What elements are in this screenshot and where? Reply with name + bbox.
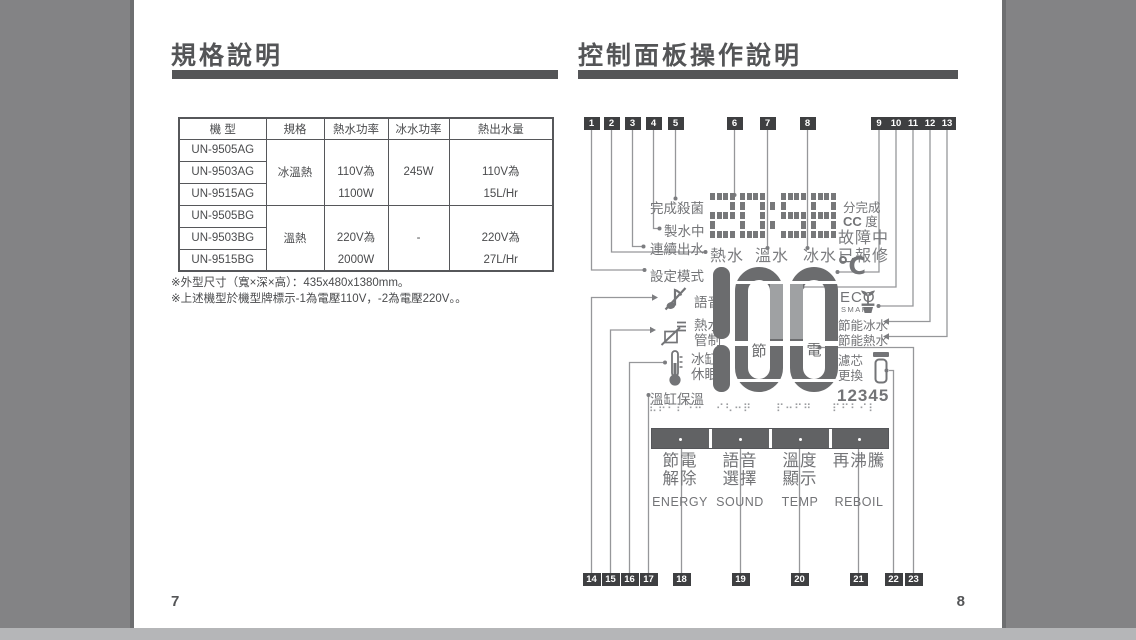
lcd-dot <box>781 193 786 200</box>
callout-20: 20 <box>791 573 809 586</box>
header-hot-power: 熱水功率 <box>324 118 388 139</box>
lcd-dot <box>811 212 816 219</box>
button-label-line1: 溫度 <box>770 452 830 470</box>
page-number-left: 7 <box>171 593 179 610</box>
segment-gap <box>790 379 838 382</box>
lcd-dot <box>794 193 799 200</box>
lcd-dot <box>747 193 752 200</box>
spec-section-title: 規格說明 <box>171 36 283 72</box>
lcd-dot <box>717 231 722 238</box>
lcd-dot <box>740 193 745 200</box>
lcd-dot <box>781 212 786 219</box>
cold-power-cell: 245W <box>388 139 449 205</box>
panel-title-bar <box>578 70 958 79</box>
table-header-row: 機 型 規格 熱水功率 冰水功率 熱出水量 <box>179 118 553 139</box>
lcd-dot <box>831 231 836 238</box>
lcd-dot <box>824 231 829 238</box>
lcd-dot <box>740 202 745 209</box>
viewer-bottom-strip <box>0 628 1136 640</box>
lcd-dot <box>723 231 728 238</box>
segment-gap <box>735 379 783 382</box>
label-making-water: 製水中 <box>664 220 705 240</box>
lcd-dot <box>811 202 816 209</box>
output-line1: 110V為 <box>452 161 551 183</box>
button-label-line2: 顯示 <box>770 470 830 488</box>
sprout-icon <box>858 288 878 314</box>
lcd-dot <box>831 193 836 200</box>
lcd-dot <box>818 231 823 238</box>
model-cell: UN-9503BG <box>179 227 266 249</box>
segment-gap <box>790 281 838 284</box>
button-divider <box>769 429 772 448</box>
hot-power-line1: 110V為 <box>327 161 386 183</box>
spec-cell: 溫熱 <box>266 205 324 271</box>
label-filter-line2: 更換 <box>838 369 863 384</box>
braille-energy: ⠧⠗⠃⠏⠙⠛ <box>645 402 707 415</box>
button-dot-energy <box>679 438 682 441</box>
lcd-dot <box>740 221 745 228</box>
lcd-dot <box>801 221 806 228</box>
lcd-dot <box>753 231 758 238</box>
button-dot-reboil <box>858 438 861 441</box>
lcd-dot <box>753 193 758 200</box>
hot-power-cell: 110V為 1100W <box>324 139 388 205</box>
label-set-mode: 設定模式 <box>650 265 704 285</box>
callout-19: 19 <box>732 573 750 586</box>
button-divider <box>709 429 712 448</box>
callout-12: 12 <box>921 117 939 130</box>
header-cold-power: 冰水功率 <box>388 118 449 139</box>
callout-14: 14 <box>583 573 601 586</box>
panel-section-title: 控制面板操作說明 <box>578 36 802 72</box>
button-label-reboil: 再沸騰 <box>829 452 889 470</box>
callout-22: 22 <box>885 573 903 586</box>
viewer-background: 規格說明 機 型 規格 熱水功率 冰水功率 熱出水量 UN-9505AG 冰溫熱… <box>0 0 1136 640</box>
lcd-dot <box>781 231 786 238</box>
table-row: UN-9505AG 冰溫熱 110V為 1100W 245W 110V為 15L… <box>179 139 553 161</box>
lcd-dot <box>710 221 715 228</box>
label-sterilize-done: 完成殺菌 <box>650 197 704 217</box>
digit-zero-2-light-segment <box>790 284 803 339</box>
lcd-dot <box>730 212 735 219</box>
lcd-dot <box>801 231 806 238</box>
model-cell: UN-9515AG <box>179 183 266 205</box>
spec-title-bar <box>172 70 558 79</box>
button-label-temp: 溫度 顯示 <box>770 452 830 488</box>
label-power-char: 電 <box>790 339 838 360</box>
model-cell: UN-9505BG <box>179 205 266 227</box>
digit-zero-1-light-segment <box>770 284 783 339</box>
segment-gap <box>735 281 783 284</box>
lcd-dot <box>831 212 836 219</box>
output-cell: 220V為 27L/Hr <box>449 205 553 271</box>
lcd-dot <box>801 212 806 219</box>
lcd-time-display <box>710 193 838 240</box>
celsius-symbol: ℃ <box>837 252 866 281</box>
callout-21: 21 <box>850 573 868 586</box>
lcd-dot <box>831 202 836 209</box>
label-save-char: 節 <box>735 340 783 361</box>
header-model: 機 型 <box>179 118 266 139</box>
lcd-dot <box>717 212 722 219</box>
callout-11: 11 <box>904 117 922 130</box>
lcd-dot <box>811 193 816 200</box>
lcd-dot <box>723 193 728 200</box>
callout-6: 6 <box>727 117 743 130</box>
button-label-line1: 節電 <box>650 452 710 470</box>
label-fault: 故障中 <box>838 224 889 248</box>
lcd-dot <box>710 212 715 219</box>
braille-reboil: ⠏⠋⠃⠊⠇ <box>832 402 876 415</box>
button-label-sound: 語音 選擇 <box>710 452 770 488</box>
digit-one-upper-segment <box>713 267 730 339</box>
callout-2: 2 <box>604 117 620 130</box>
lcd-dot <box>730 202 735 209</box>
lcd-dot <box>788 212 793 219</box>
lcd-dot <box>730 193 735 200</box>
model-cell: UN-9503AG <box>179 161 266 183</box>
lcd-dot <box>717 193 722 200</box>
cold-power-cell: - <box>388 205 449 271</box>
output-line1: 220V為 <box>452 227 551 249</box>
lcd-dot <box>760 202 765 209</box>
callout-17: 17 <box>640 573 658 586</box>
label-continuous-out: 連續出水 <box>650 238 704 258</box>
lcd-dot <box>723 212 728 219</box>
callout-18: 18 <box>673 573 691 586</box>
lcd-dot <box>710 231 715 238</box>
lcd-dot <box>770 202 775 209</box>
label-filter-replace: 濾芯 更換 <box>838 354 863 384</box>
callout-8: 8 <box>800 117 816 130</box>
voice-mute-icon <box>662 284 690 312</box>
button-divider <box>829 429 832 448</box>
lcd-dot <box>794 212 799 219</box>
hot-power-line2: 1100W <box>327 183 386 205</box>
lcd-dot <box>740 212 745 219</box>
button-strip <box>651 428 889 449</box>
callout-3: 3 <box>625 117 641 130</box>
lcd-dot <box>811 231 816 238</box>
lcd-dot <box>760 193 765 200</box>
callout-15: 15 <box>602 573 620 586</box>
lcd-dot <box>740 231 745 238</box>
callout-7: 7 <box>760 117 776 130</box>
button-label-line1: 語音 <box>710 452 770 470</box>
spec-cell: 冰溫熱 <box>266 139 324 205</box>
lcd-dot <box>760 231 765 238</box>
braille-sound: ⠊⠣⠒⠟ <box>712 402 756 415</box>
hot-power-line2: 2000W <box>327 249 386 271</box>
label-eco-hot: 節能熱水 <box>838 330 888 349</box>
button-label-line1: 再沸騰 <box>829 452 889 470</box>
spec-table: 機 型 規格 熱水功率 冰水功率 熱出水量 UN-9505AG 冰溫熱 110V… <box>178 117 554 272</box>
thermometer-icon <box>667 349 684 387</box>
button-label-reboil-en: REBOIL <box>824 495 894 509</box>
note-voltage: ※上述機型於機型牌標示-1為電壓110V，-2為電壓220V。。 <box>171 292 467 307</box>
lcd-dot <box>760 221 765 228</box>
button-dot-sound <box>739 438 742 441</box>
lcd-dot <box>710 193 715 200</box>
callout-23: 23 <box>905 573 923 586</box>
callout-4: 4 <box>646 117 662 130</box>
hot-water-control-icon <box>660 318 690 348</box>
lcd-dot <box>770 221 775 228</box>
hot-power-cell: 220V為 2000W <box>324 205 388 271</box>
lcd-dot <box>730 231 735 238</box>
hot-power-line1: 220V為 <box>327 227 386 249</box>
callout-9: 9 <box>871 117 887 130</box>
label-cold-water: 冰水 <box>803 242 837 266</box>
lcd-dot <box>818 212 823 219</box>
label-hot-water: 熱水 <box>710 242 744 266</box>
output-cell: 110V為 15L/Hr <box>449 139 553 205</box>
header-spec: 規格 <box>266 118 324 139</box>
button-label-energy: 節電 解除 <box>650 452 710 488</box>
label-warm-water: 溫水 <box>755 242 789 266</box>
output-line2: 27L/Hr <box>452 249 551 271</box>
lcd-dot <box>788 231 793 238</box>
digit-one-lower-segment <box>713 345 730 392</box>
lcd-dot <box>811 221 816 228</box>
note-dimensions: ※外型尺寸（寬×深×高）：435x480x1380mm。 <box>171 276 409 291</box>
output-line2: 15L/Hr <box>452 183 551 205</box>
filter-cartridge-icon <box>872 352 890 385</box>
header-output: 熱出水量 <box>449 118 553 139</box>
model-cell: UN-9515BG <box>179 249 266 271</box>
button-dot-temp <box>799 438 802 441</box>
lcd-dot <box>781 202 786 209</box>
callout-1: 1 <box>584 117 600 130</box>
callout-13: 13 <box>938 117 956 130</box>
button-label-line2: 選擇 <box>710 470 770 488</box>
lcd-dot <box>788 193 793 200</box>
lcd-dot <box>831 221 836 228</box>
braille-temp: ⠏⠒⠋⠛ <box>776 402 812 415</box>
page-number-right: 8 <box>945 593 965 610</box>
lcd-dot <box>824 212 829 219</box>
lcd-dot <box>760 212 765 219</box>
label-filter-line1: 濾芯 <box>838 354 863 369</box>
lcd-dot <box>801 193 806 200</box>
table-row: UN-9505BG 溫熱 220V為 2000W - 220V為 27L/Hr <box>179 205 553 227</box>
callout-5: 5 <box>668 117 684 130</box>
lcd-dot <box>747 231 752 238</box>
callout-16: 16 <box>621 573 639 586</box>
callout-10: 10 <box>887 117 905 130</box>
lcd-dot <box>794 231 799 238</box>
button-label-line2: 解除 <box>650 470 710 488</box>
model-cell: UN-9505AG <box>179 139 266 161</box>
lcd-dot <box>824 193 829 200</box>
lcd-dot <box>818 193 823 200</box>
